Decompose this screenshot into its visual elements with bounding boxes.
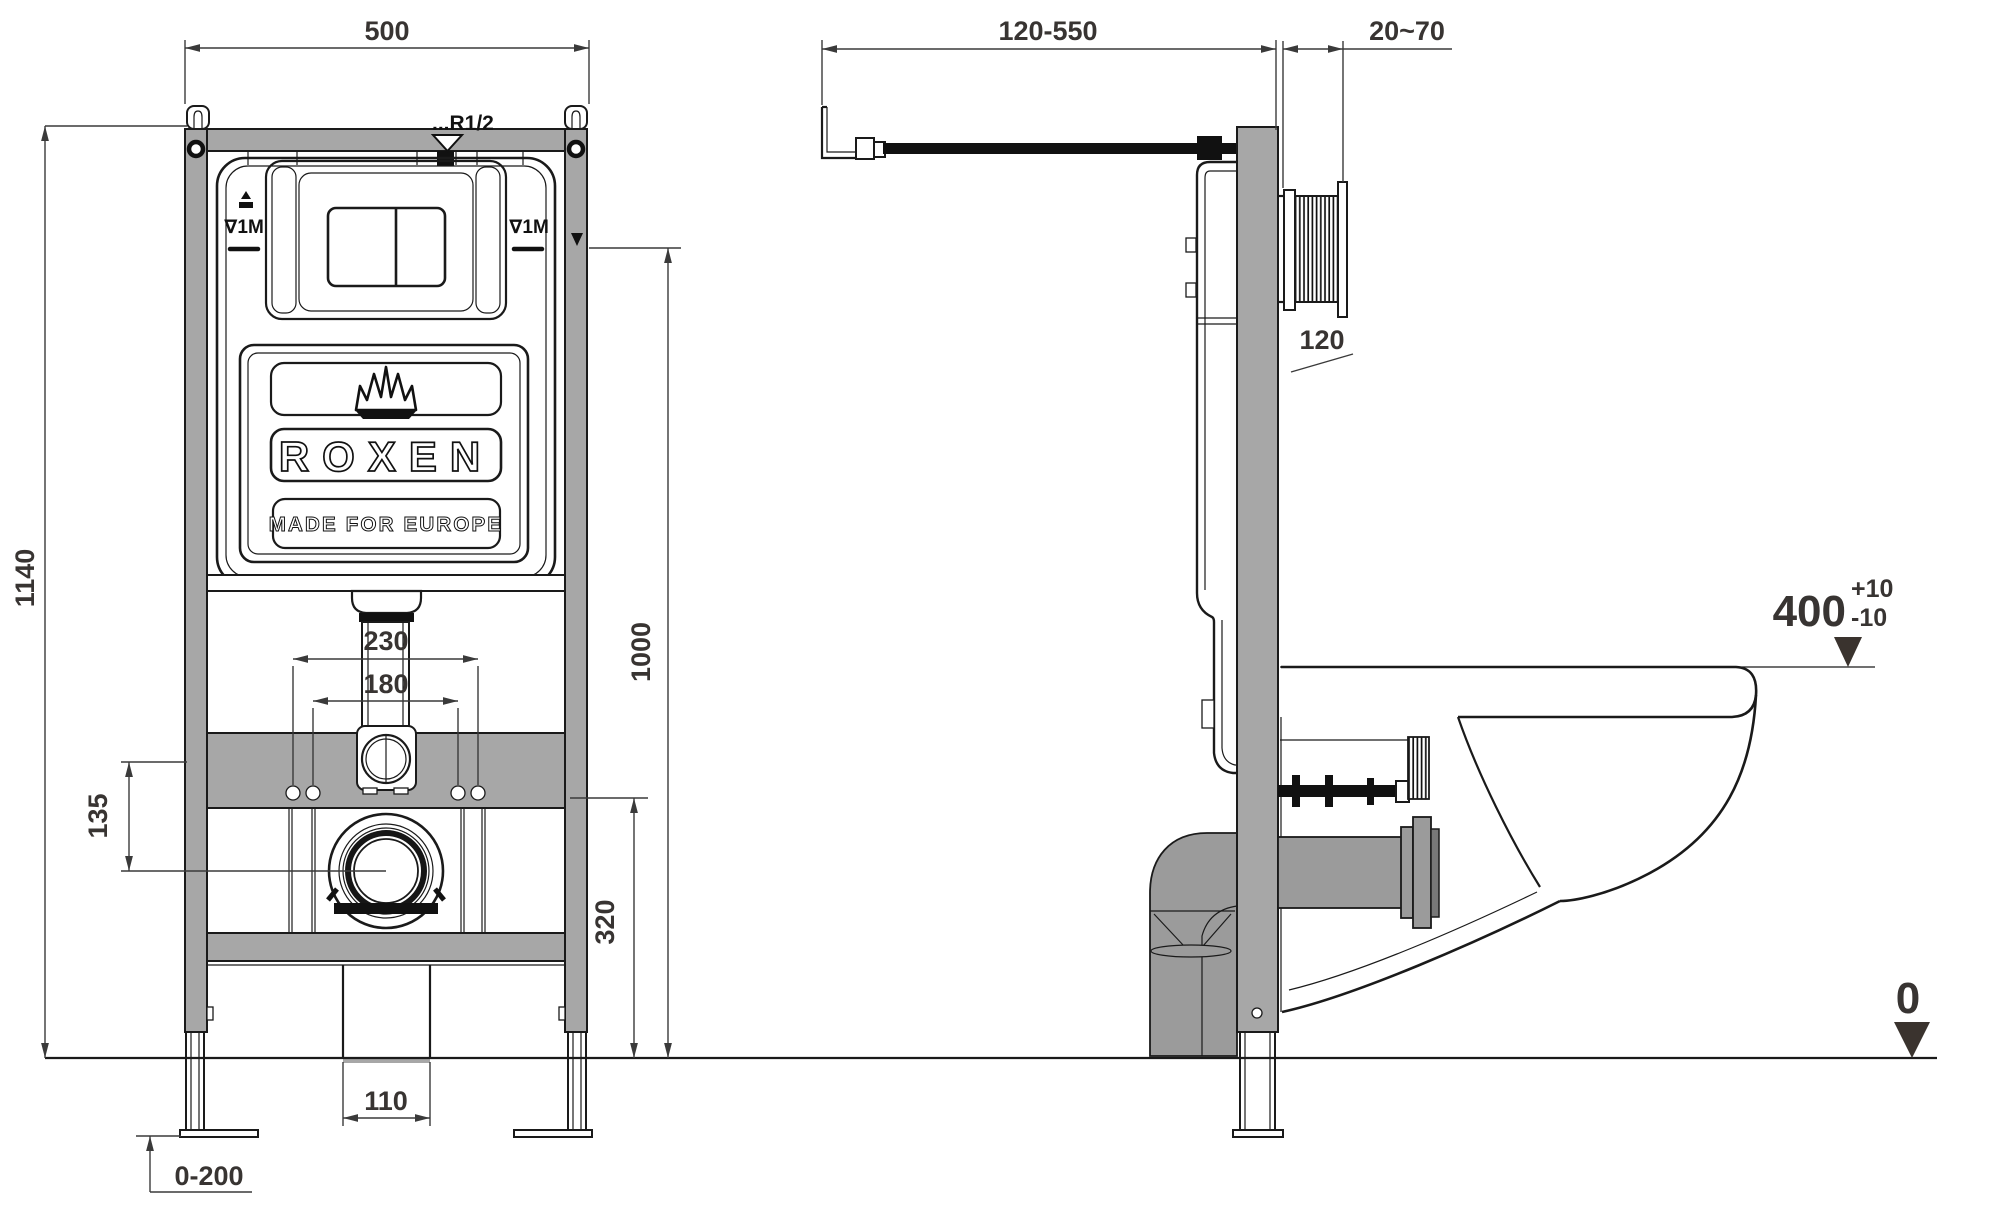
dim-seat-height: 400 — [1773, 587, 1846, 636]
floor-level: 0 — [1894, 974, 1930, 1058]
level-triangle-icon — [1894, 1022, 1930, 1058]
fill-level-icon — [241, 191, 251, 199]
rod-clamp-block — [1197, 136, 1222, 160]
mid-rail — [207, 575, 565, 591]
flush-buttons — [328, 208, 445, 286]
drain-elbow — [1150, 833, 1237, 1056]
installation-frame-drawing: ...R1/2 ∇1M ∇1M — [0, 0, 2000, 1210]
meter-mark-right: ∇1M — [509, 217, 549, 249]
sleeve-ribs — [1295, 196, 1338, 302]
dim-inlet-outlet-offset: 135 — [83, 793, 113, 838]
post-hole — [1252, 1008, 1262, 1018]
lower-rail — [207, 933, 565, 961]
crown-icon — [355, 367, 417, 419]
side-post — [1237, 127, 1278, 1032]
adjustable-foot-left — [180, 1032, 258, 1137]
dim-foot-adjust: 0-200 — [174, 1161, 243, 1191]
post-bolt-right-icon — [569, 142, 583, 156]
wall-hook-left-icon — [187, 106, 209, 129]
brand-tagline-label: MADE FOR EUROPE — [269, 513, 504, 536]
water-inlet-label: ...R1/2 — [432, 112, 494, 135]
dim-floor-level: 0 — [1896, 974, 1920, 1023]
adjustable-foot-side — [1233, 1032, 1283, 1137]
fixing-hole — [306, 786, 320, 800]
meter-mark-left-label: ∇1M — [224, 217, 264, 238]
technical-drawing-page: ...R1/2 ∇1M ∇1M — [0, 0, 2000, 1210]
wall-hook-right-icon — [565, 106, 587, 129]
seat-height-level: 400 +10 -10 — [1773, 575, 1894, 667]
brand-panel: ROXEN MADE FOR EUROPE — [240, 345, 528, 562]
post-bolt-left-icon — [189, 142, 203, 156]
water-fitting — [357, 726, 416, 794]
fixing-hole — [286, 786, 300, 800]
dim-drain-pipe: 110 — [364, 1086, 408, 1116]
dim-fixing-inner: 180 — [363, 669, 408, 699]
fixing-stud — [1278, 737, 1429, 807]
dim-frame-height: 1140 — [10, 549, 40, 608]
front-right-post — [565, 129, 587, 1032]
stud-anchor-hatch — [1408, 737, 1429, 799]
meter-mark-left: ∇1M — [224, 191, 264, 249]
dim-fixing-outer: 230 — [363, 626, 408, 656]
dim-seat-tol-minus: -10 — [1851, 604, 1887, 632]
flush-plate-housing — [266, 161, 506, 319]
dim-seat-tol-plus: +10 — [1851, 575, 1893, 603]
dim-inlet-depth-range: 120-550 — [998, 16, 1097, 46]
level-triangle-icon — [1834, 637, 1862, 667]
drain-bracket — [334, 903, 438, 914]
dim-outlet-height: 320 — [590, 899, 620, 944]
meter-mark-right-label: ∇1M — [509, 217, 549, 238]
cistern-side — [1186, 162, 1237, 773]
bowl-drain-connector — [1278, 817, 1439, 928]
inlet-bracket — [822, 107, 885, 159]
brand-name-label: ROXEN — [279, 433, 493, 480]
plate-access-sleeve — [1278, 182, 1347, 317]
dim-one-meter: 1000 — [626, 622, 656, 682]
flush-pipe — [352, 591, 421, 733]
dim-plate-housing: 120 — [1299, 325, 1344, 355]
dim-wall-finish-range: 20~70 — [1369, 16, 1445, 46]
fixing-hole — [471, 786, 485, 800]
inlet-rod — [883, 143, 1240, 154]
side-view — [822, 107, 1875, 1137]
fixing-hole — [451, 786, 465, 800]
adjustable-foot-right — [514, 1032, 592, 1137]
dim-width: 500 — [364, 16, 409, 46]
front-left-post — [185, 129, 207, 1032]
front-view: ...R1/2 ∇1M ∇1M — [180, 106, 592, 1137]
front-top-rail — [207, 129, 565, 151]
